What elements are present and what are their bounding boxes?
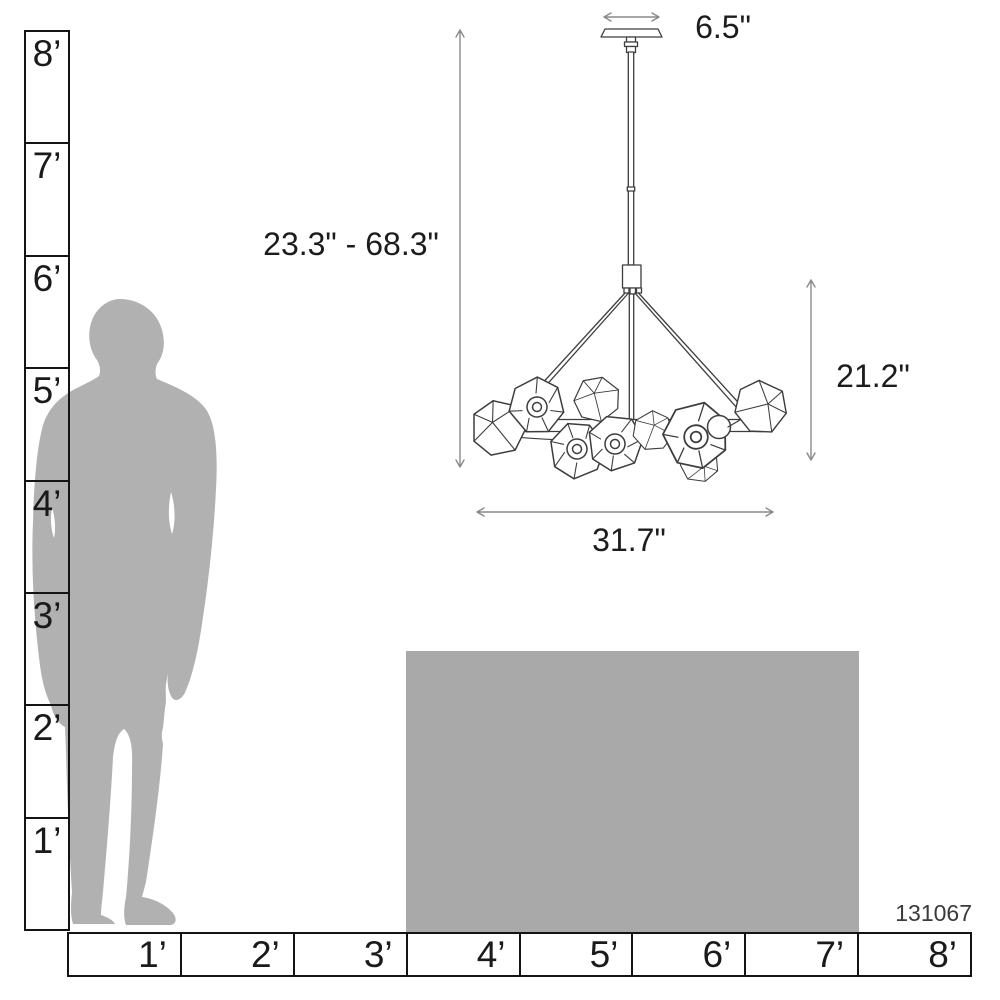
horizontal-ruler-label: 8’ [928,934,970,975]
product-code: 131067 [852,900,972,927]
horizontal-ruler-label: 2’ [251,934,293,975]
horizontal-ruler-cell: 7’ [746,934,859,975]
vertical-ruler-cell: 7’ [26,144,68,256]
body-width-arrow [477,508,773,516]
downrod-joint [627,187,634,191]
bulb-sphere [708,416,731,439]
hub-box [623,265,642,288]
vertical-ruler-cell: 5’ [26,369,68,481]
vertical-ruler-cell: 3’ [26,594,68,706]
canopy-width-arrow [604,13,659,21]
horizontal-feet-ruler: 1’ 2’ 3’ 4’ 5’ 6’ 7’ 8’ [67,932,972,977]
scale-diagram: 8’ 7’ 6’ 5’ 4’ 3’ 2’ 1’ 1’ 2’ 3’ 4’ 5’ 6… [0,0,1000,1000]
center-rod [629,294,633,421]
vertical-ruler-cell: 6’ [26,257,68,369]
body-height-arrow [807,280,815,460]
horizontal-ruler-cell: 5’ [521,934,634,975]
overall-height-label: 23.3" - 68.3" [261,226,441,263]
body-height-label: 21.2" [823,358,923,395]
vertical-ruler-label: 8’ [33,32,62,74]
diagram-artwork [0,0,1000,1000]
table-scale-block [406,651,859,932]
horizontal-ruler-cell: 6’ [633,934,746,975]
vertical-ruler-cell: 4’ [26,482,68,594]
vertical-ruler-label: 4’ [33,482,62,524]
canopy-width-label: 6.5" [673,9,773,46]
vertical-ruler-label: 1’ [33,819,62,861]
horizontal-ruler-cell: 3’ [295,934,408,975]
horizontal-ruler-label: 1’ [138,934,180,975]
vertical-ruler-cell: 2’ [26,706,68,818]
canopy-fitting [627,37,636,42]
horizontal-ruler-label: 5’ [590,934,632,975]
vertical-ruler-label: 7’ [33,144,62,186]
vertical-ruler-label: 6’ [33,257,62,299]
horizontal-ruler-cell: 2’ [182,934,295,975]
vertical-ruler-cell: 1’ [26,819,68,929]
vertical-ruler-label: 5’ [33,369,62,411]
horizontal-ruler-cell: 1’ [69,934,182,975]
canopy [601,29,662,37]
horizontal-ruler-label: 4’ [477,934,519,975]
overall-height-arrow [456,30,464,467]
vertical-feet-ruler: 8’ 7’ 6’ 5’ 4’ 3’ 2’ 1’ [24,30,70,931]
vertical-ruler-cell: 8’ [26,32,68,144]
body-width-label: 31.7" [554,522,704,559]
horizontal-ruler-label: 7’ [815,934,857,975]
vertical-ruler-label: 2’ [33,706,62,748]
chandelier-drawing [465,29,796,484]
vertical-ruler-label: 3’ [33,594,62,636]
horizontal-ruler-cell: 8’ [859,934,970,975]
downrod [628,52,633,265]
horizontal-ruler-cell: 4’ [408,934,521,975]
horizontal-ruler-label: 6’ [702,934,744,975]
horizontal-ruler-label: 3’ [364,934,406,975]
